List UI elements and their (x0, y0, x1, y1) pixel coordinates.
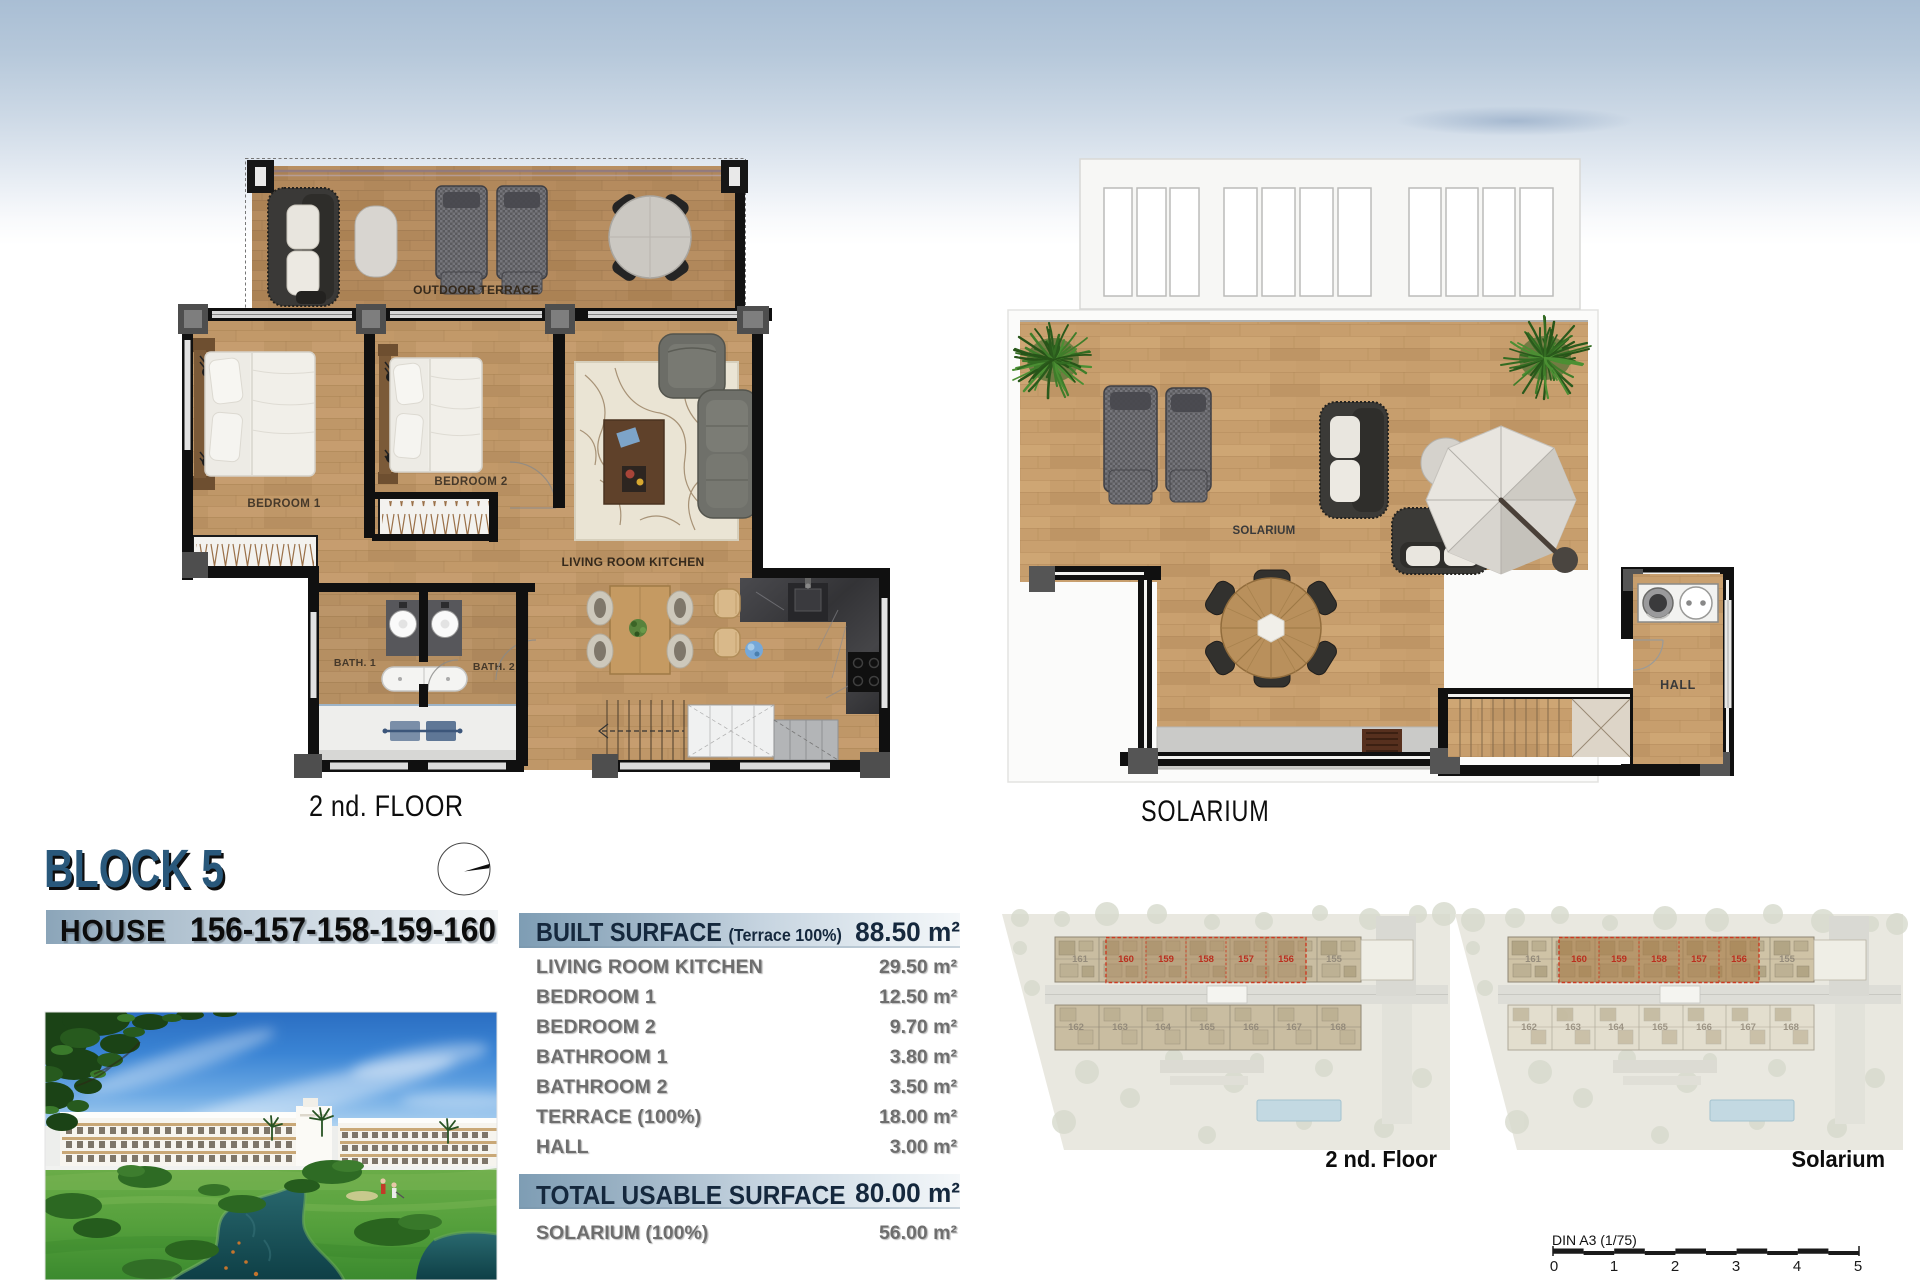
svg-text:163: 163 (1565, 1022, 1581, 1033)
svg-text:4: 4 (1793, 1258, 1801, 1275)
svg-text:160: 160 (1571, 954, 1587, 965)
svg-text:163: 163 (1112, 1022, 1128, 1033)
svg-text:0: 0 (1550, 1258, 1558, 1275)
svg-text:165: 165 (1652, 1022, 1669, 1033)
svg-text:166: 166 (1243, 1022, 1259, 1033)
svg-text:161: 161 (1072, 954, 1089, 965)
svg-text:167: 167 (1740, 1022, 1756, 1033)
svg-text:164: 164 (1608, 1022, 1625, 1033)
svg-text:161: 161 (1525, 954, 1542, 965)
svg-text:157: 157 (1691, 954, 1707, 965)
svg-text:156: 156 (1278, 954, 1294, 965)
svg-text:BEDROOM 2: BEDROOM 2 (434, 476, 507, 488)
svg-text:BATH. 2: BATH. 2 (473, 661, 515, 673)
svg-text:BEDROOM 1: BEDROOM 1 (247, 498, 320, 510)
svg-text:160: 160 (1118, 954, 1134, 965)
svg-text:166: 166 (1696, 1022, 1712, 1033)
svg-text:162: 162 (1068, 1022, 1084, 1033)
svg-text:155: 155 (1326, 954, 1343, 965)
svg-text:3: 3 (1732, 1258, 1740, 1275)
svg-text:162: 162 (1521, 1022, 1537, 1033)
svg-text:168: 168 (1783, 1022, 1799, 1033)
svg-text:158: 158 (1651, 954, 1667, 965)
svg-text:1: 1 (1610, 1258, 1618, 1275)
svg-text:LIVING ROOM KITCHEN: LIVING ROOM KITCHEN (561, 555, 704, 569)
svg-text:157: 157 (1238, 954, 1254, 965)
svg-text:155: 155 (1779, 954, 1796, 965)
svg-text:158: 158 (1198, 954, 1214, 965)
svg-text:5: 5 (1854, 1258, 1862, 1275)
svg-text:159: 159 (1158, 954, 1174, 965)
svg-text:165: 165 (1199, 1022, 1216, 1033)
svg-text:168: 168 (1330, 1022, 1346, 1033)
svg-text:OUTDOOR TERRACE: OUTDOOR TERRACE (413, 283, 539, 297)
svg-text:164: 164 (1155, 1022, 1172, 1033)
svg-text:HALL: HALL (1660, 678, 1696, 692)
svg-text:SOLARIUM: SOLARIUM (1233, 525, 1296, 537)
svg-text:167: 167 (1286, 1022, 1302, 1033)
svg-text:159: 159 (1611, 954, 1627, 965)
svg-text:BATH. 1: BATH. 1 (334, 657, 376, 669)
svg-text:2: 2 (1671, 1258, 1679, 1275)
svg-text:156: 156 (1731, 954, 1747, 965)
